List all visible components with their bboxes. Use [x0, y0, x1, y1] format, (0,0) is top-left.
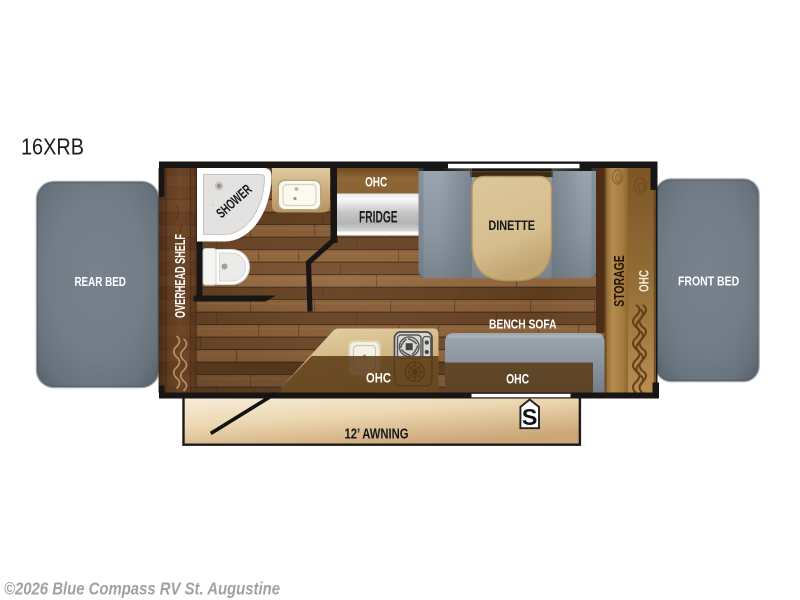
svg-text:REAR BED: REAR BED [74, 275, 126, 289]
svg-text:OHC: OHC [366, 371, 391, 386]
svg-text:OVERHEAD SHELF: OVERHEAD SHELF [172, 234, 189, 318]
svg-text:OHC: OHC [636, 270, 652, 292]
svg-text:OHC: OHC [365, 173, 387, 189]
svg-text:FRONT BED: FRONT BED [678, 274, 739, 289]
svg-text:DINETTE: DINETTE [488, 218, 535, 233]
svg-text:16XRB: 16XRB [21, 134, 84, 160]
svg-text:OHC: OHC [506, 372, 529, 387]
svg-text:FRIDGE: FRIDGE [359, 208, 398, 226]
svg-text:BENCH SOFA: BENCH SOFA [489, 317, 557, 332]
svg-text:©2026 Blue Compass RV St. Augu: ©2026 Blue Compass RV St. Augustine [4, 579, 280, 599]
svg-text:STORAGE: STORAGE [611, 255, 628, 307]
svg-text:S: S [522, 404, 538, 430]
svg-text:12’ AWNING: 12’ AWNING [345, 427, 409, 443]
